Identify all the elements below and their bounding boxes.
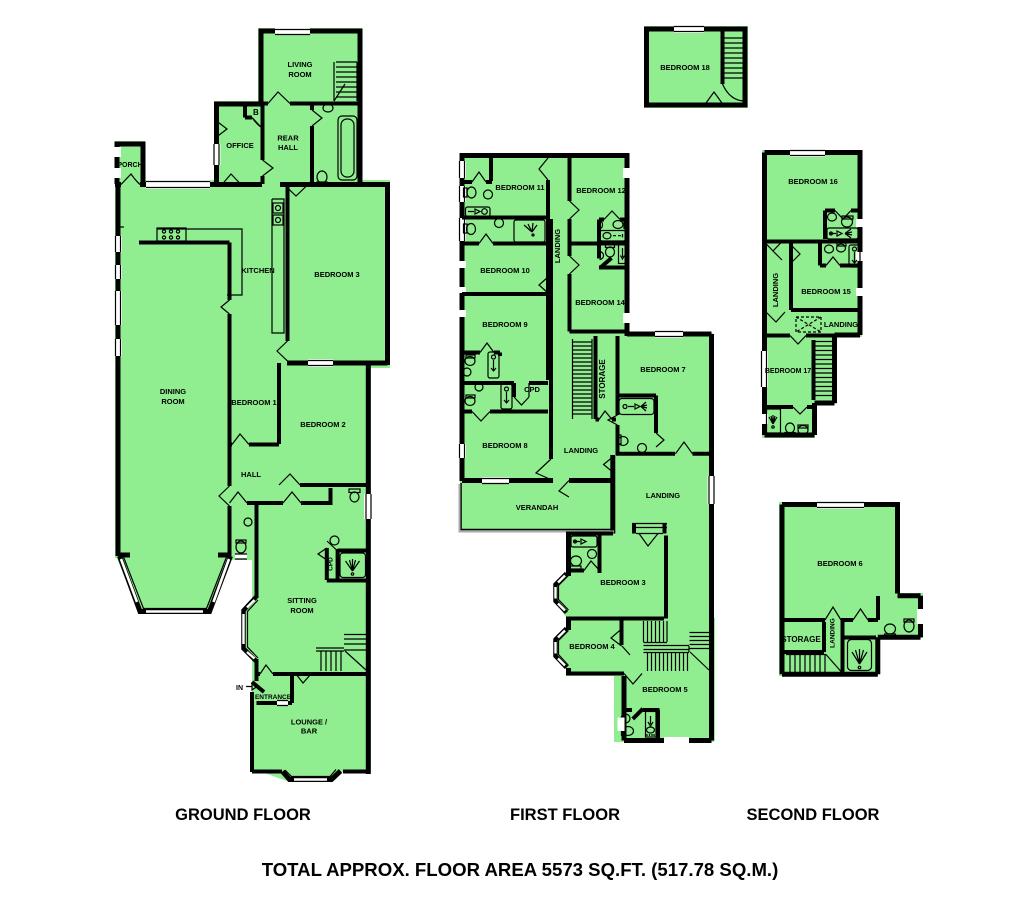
svg-text:HALL: HALL	[241, 470, 261, 479]
svg-text:ROOM: ROOM	[290, 606, 313, 615]
svg-text:BEDROOM 14: BEDROOM 14	[575, 298, 625, 307]
svg-text:LANDING: LANDING	[824, 320, 858, 329]
svg-text:LANDING: LANDING	[564, 446, 598, 455]
svg-text:BEDROOM 9: BEDROOM 9	[482, 320, 527, 329]
svg-text:BEDROOM 15: BEDROOM 15	[801, 287, 851, 296]
svg-text:BEDROOM 5: BEDROOM 5	[642, 685, 687, 694]
svg-text:CPD: CPD	[524, 385, 540, 394]
svg-text:B: B	[253, 108, 259, 117]
svg-text:REAR: REAR	[277, 134, 299, 143]
svg-text:LOUNGE /: LOUNGE /	[291, 718, 328, 727]
svg-text:STORAGE: STORAGE	[781, 635, 821, 644]
svg-text:BEDROOM 16: BEDROOM 16	[788, 177, 838, 186]
svg-text:SECOND FLOOR: SECOND FLOOR	[747, 806, 880, 824]
svg-text:BEDROOM 6: BEDROOM 6	[817, 559, 862, 568]
svg-text:FIRST FLOOR: FIRST FLOOR	[510, 806, 620, 824]
svg-text:BEDROOM 8: BEDROOM 8	[482, 441, 527, 450]
svg-text:BEDROOM 7: BEDROOM 7	[640, 365, 685, 374]
svg-text:KITCHEN: KITCHEN	[241, 266, 274, 275]
svg-text:GROUND FLOOR: GROUND FLOOR	[175, 806, 311, 824]
svg-text:LANDING: LANDING	[830, 618, 837, 648]
svg-text:BEDROOM 4: BEDROOM 4	[569, 642, 615, 651]
svg-text:DINING: DINING	[160, 387, 186, 396]
svg-text:TOTAL APPROX. FLOOR AREA 5573: TOTAL APPROX. FLOOR AREA 5573 SQ.FT. (51…	[262, 859, 779, 880]
svg-text:BEDROOM 17: BEDROOM 17	[765, 368, 811, 375]
svg-text:BEDROOM 2: BEDROOM 2	[300, 420, 345, 429]
svg-text:SITTING: SITTING	[287, 596, 317, 605]
svg-text:IN: IN	[236, 685, 243, 692]
svg-text:BEDROOM 3: BEDROOM 3	[600, 578, 645, 587]
svg-text:HALL: HALL	[278, 143, 298, 152]
svg-text:BEDROOM 11: BEDROOM 11	[495, 183, 544, 192]
svg-text:STORAGE: STORAGE	[598, 359, 607, 399]
svg-text:BEDROOM 12: BEDROOM 12	[576, 186, 626, 195]
svg-text:LANDING: LANDING	[771, 273, 780, 307]
svg-text:ROOM: ROOM	[161, 397, 184, 406]
svg-text:BEDROOM 18: BEDROOM 18	[660, 63, 710, 72]
svg-text:LANDING: LANDING	[553, 229, 562, 263]
svg-text:ROOM: ROOM	[288, 70, 311, 79]
svg-text:LANDING: LANDING	[646, 491, 680, 500]
svg-text:LIVING: LIVING	[287, 60, 312, 69]
svg-text:BEDROOM 1: BEDROOM 1	[231, 398, 276, 407]
svg-text:BAR: BAR	[301, 727, 318, 736]
svg-text:BEDROOM 3: BEDROOM 3	[314, 270, 359, 279]
svg-text:BEDROOM 10: BEDROOM 10	[480, 266, 530, 275]
svg-text:CPD: CPD	[328, 557, 335, 571]
svg-text:ENTRANCE: ENTRANCE	[255, 694, 292, 701]
svg-text:OFFICE: OFFICE	[226, 141, 254, 150]
svg-text:PORCH: PORCH	[117, 162, 142, 169]
svg-text:VERANDAH: VERANDAH	[516, 503, 559, 512]
